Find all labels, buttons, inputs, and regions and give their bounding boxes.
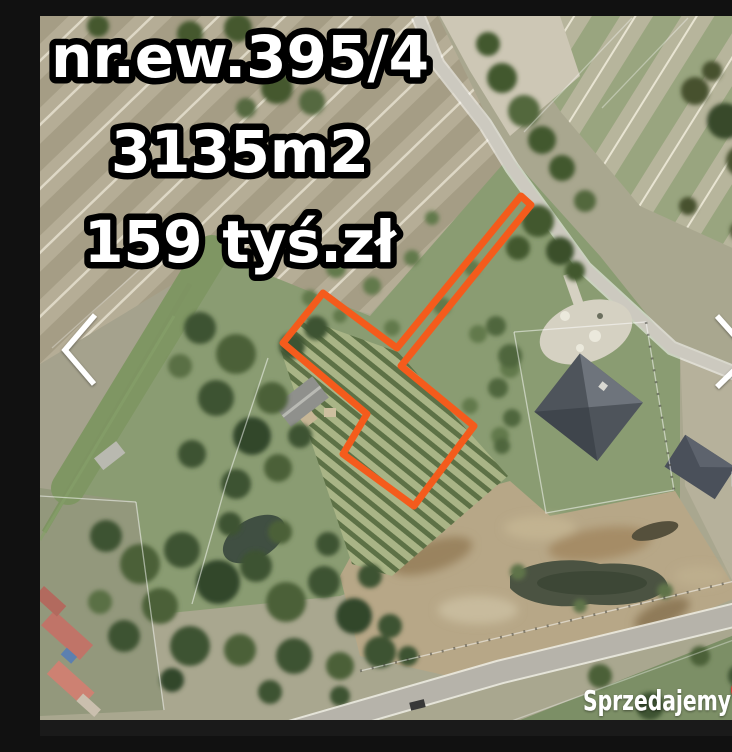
area-text: 3135m2: [111, 118, 369, 186]
pond-center-deep: [537, 571, 647, 595]
watermark: Sprzedajemy .pl: [583, 679, 732, 717]
farm-shed-2: [324, 408, 336, 417]
price-text: 159 tyś.zł: [84, 208, 397, 276]
watermark-brand: Sprzedajemy: [583, 684, 731, 717]
listing-photo[interactable]: nr.ew.395/4 3135m2 159 tyś.zł Sprzedajem…: [40, 16, 732, 736]
bottom-bar: [40, 720, 732, 736]
plot-number-text: nr.ew.395/4: [51, 23, 429, 91]
